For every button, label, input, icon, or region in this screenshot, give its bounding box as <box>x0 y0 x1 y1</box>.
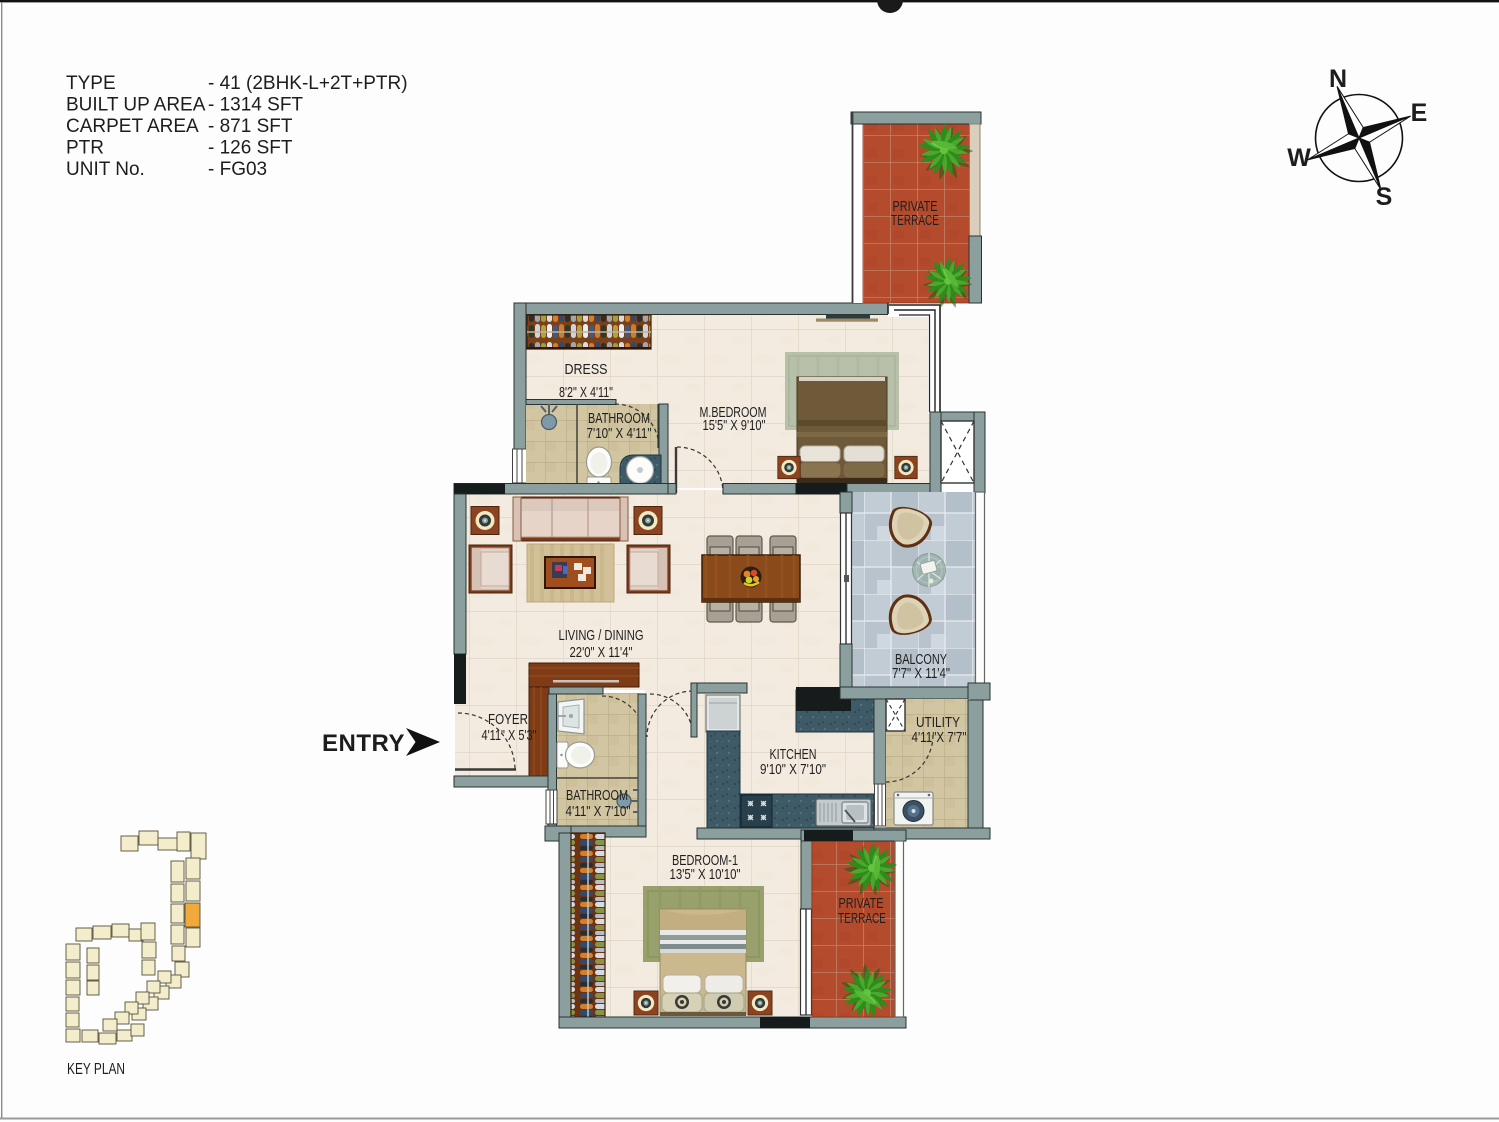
svg-text:TERRACE: TERRACE <box>891 212 939 229</box>
svg-text:4'11"X 7'7": 4'11"X 7'7" <box>912 729 967 746</box>
svg-text:- 41 (2BHK-L+2T+PTR): - 41 (2BHK-L+2T+PTR) <box>208 73 408 94</box>
svg-text:4'11" X 5'3": 4'11" X 5'3" <box>482 727 537 744</box>
svg-text:7'7" X 11'4": 7'7" X 11'4" <box>892 665 950 682</box>
svg-text:13'5" X 10'10": 13'5" X 10'10" <box>670 866 741 883</box>
svg-text:15'5" X 9'10": 15'5" X 9'10" <box>703 417 766 434</box>
svg-text:W: W <box>1287 144 1311 172</box>
svg-text:PTR: PTR <box>66 138 104 159</box>
svg-text:UNIT No.: UNIT No. <box>66 159 145 180</box>
svg-text:9'10" X 7'10": 9'10" X 7'10" <box>760 761 826 778</box>
svg-text:N: N <box>1329 65 1347 93</box>
svg-text:DRESS: DRESS <box>565 361 608 378</box>
svg-text:CARPET AREA: CARPET AREA <box>66 116 199 137</box>
svg-text:- 126 SFT: - 126 SFT <box>208 138 293 159</box>
svg-text:22'0" X 11'4": 22'0" X 11'4" <box>570 644 633 661</box>
svg-text:KEY PLAN: KEY PLAN <box>67 1061 125 1078</box>
svg-text:S: S <box>1376 183 1393 211</box>
svg-text:- FG03: - FG03 <box>208 159 267 180</box>
svg-text:LIVING / DINING: LIVING / DINING <box>559 627 644 644</box>
svg-text:BUILT UP AREA: BUILT UP AREA <box>66 95 206 116</box>
svg-text:8'2" X 4'11": 8'2" X 4'11" <box>559 384 613 401</box>
svg-text:7'10" X 4'11": 7'10" X 4'11" <box>587 425 652 442</box>
svg-text:- 1314 SFT: - 1314 SFT <box>208 95 303 116</box>
svg-text:TYPE: TYPE <box>66 73 116 94</box>
svg-text:- 871 SFT: - 871 SFT <box>208 116 293 137</box>
svg-text:FOYER: FOYER <box>488 711 528 728</box>
svg-text:TERRACE: TERRACE <box>838 910 886 927</box>
svg-text:ENTRY: ENTRY <box>322 730 405 757</box>
svg-text:E: E <box>1411 99 1428 127</box>
svg-text:BATHROOM: BATHROOM <box>566 787 628 804</box>
svg-text:4'11" X 7'10": 4'11" X 7'10" <box>566 803 631 820</box>
